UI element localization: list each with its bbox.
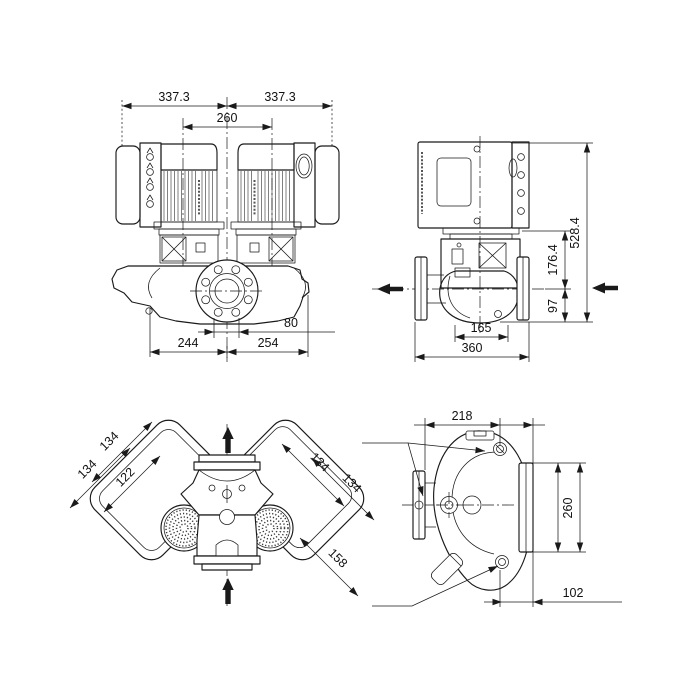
drawing-canvas: 337.3 337.3 260 80 244 254 [0,0,700,700]
display-window [437,158,471,206]
dim-motor-to-center: 176.4 [546,244,560,275]
dim-right-mid: 134 [340,471,365,496]
suction-flange [190,260,264,322]
side-dimensions: 176.4 97 528.4 165 360 [415,143,593,362]
dim-center-to-base: 97 [546,299,560,313]
dim-axis-to-back: 102 [563,586,584,600]
dim-face-to-axis: 218 [452,409,473,423]
flow-direction-arrow-icon [377,284,403,295]
side-view: 176.4 97 528.4 165 360 [372,136,618,362]
shaft-center [436,492,462,518]
gauge-spout-icon [429,551,464,586]
left-motor [116,143,224,263]
coupling-guard-icon [162,237,186,261]
volute-body [413,431,533,590]
dim-head-spacing: 260 [217,111,238,125]
tapping-leader-lines [362,443,499,606]
dim-overall-length: 360 [462,341,483,355]
drain-plug-icon [495,311,502,318]
cable-gland-icons [147,148,154,207]
pump-head [441,239,520,288]
dim-port-height: 260 [561,498,575,519]
flow-direction-arrow-icon [222,427,233,453]
blanking-plug-icon [296,154,312,178]
dim-left-outer: 134 [97,429,122,454]
pump-head-stool [160,235,218,263]
coupling-guard-icon [269,237,293,261]
pump-dimensional-drawing: 337.3 337.3 260 80 244 254 [0,0,700,700]
dim-total-height: 528.4 [568,217,582,248]
coupling-guard-icon [479,243,506,268]
pump-casing [112,260,309,324]
dim-center-to-right: 254 [258,336,279,350]
volute-and-pipe [415,257,529,323]
dim-left-inner: 122 [113,465,138,490]
dim-overall-right: 337.3 [264,90,295,104]
pump-head-stool [237,235,295,263]
right-motor [231,143,339,263]
flow-direction-arrow-icon [592,283,618,294]
end-view: 218 260 102 [362,409,622,607]
dim-overall-left: 337.3 [158,90,189,104]
motor-control-box [418,142,529,239]
drain-plug-icon [146,308,152,314]
flow-direction-arrow-icon [222,578,233,604]
top-view: 134 134 122 134 134 158 [68,414,377,606]
dim-center-to-left: 244 [178,336,199,350]
dim-head-width: 165 [471,321,492,335]
front-view: 337.3 337.3 260 80 244 254 [112,90,339,362]
dim-bolt-spacing: 80 [284,316,298,330]
